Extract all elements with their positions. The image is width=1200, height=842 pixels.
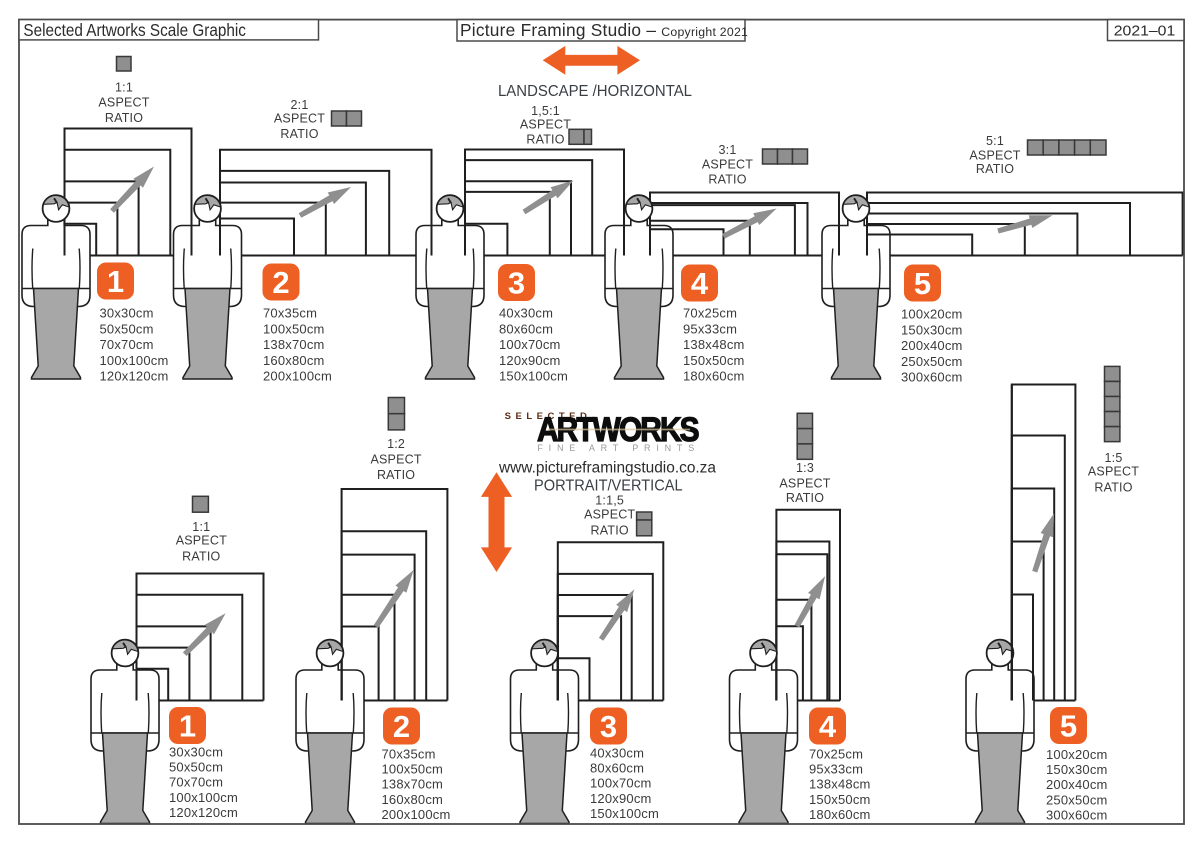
svg-text:5:1: 5:1 [986,134,1004,148]
svg-text:PORTRAIT/VERTICAL: PORTRAIT/VERTICAL [534,478,683,495]
svg-text:50x50cm: 50x50cm [100,321,154,336]
svg-text:ASPECT: ASPECT [176,533,227,547]
svg-text:LANDSCAPE /HORIZONTAL: LANDSCAPE /HORIZONTAL [498,83,692,100]
svg-text:250x50cm: 250x50cm [901,354,963,369]
svg-text:120x120cm: 120x120cm [169,805,238,820]
svg-text:30x30cm: 30x30cm [169,745,223,760]
svg-text:300x60cm: 300x60cm [901,370,963,385]
svg-text:70x35cm: 70x35cm [382,747,436,762]
svg-text:70x25cm: 70x25cm [809,747,863,762]
svg-text:138x48cm: 138x48cm [809,777,871,792]
svg-text:2:1: 2:1 [291,98,309,112]
svg-text:100x20cm: 100x20cm [1046,747,1108,762]
svg-text:FINE ART PRINTS: FINE ART PRINTS [537,443,700,453]
svg-text:1: 1 [179,709,196,744]
svg-text:ASPECT: ASPECT [520,118,571,132]
svg-text:5: 5 [1060,709,1077,744]
svg-text:70x25cm: 70x25cm [683,306,737,321]
svg-text:RATIO: RATIO [591,524,629,538]
svg-text:RATIO: RATIO [708,173,746,187]
svg-text:150x50cm: 150x50cm [809,792,871,807]
svg-text:RATIO: RATIO [976,162,1014,176]
svg-text:138x70cm: 138x70cm [382,777,444,792]
svg-text:150x100cm: 150x100cm [590,806,659,821]
svg-text:ASPECT: ASPECT [274,112,325,126]
svg-text:70x70cm: 70x70cm [169,775,223,790]
svg-text:1:1: 1:1 [192,520,210,534]
svg-text:Selected Artworks Scale Graphi: Selected Artworks Scale Graphic [23,20,246,40]
svg-text:100x50cm: 100x50cm [382,762,444,777]
svg-text:RATIO: RATIO [526,133,564,147]
svg-text:40x30cm: 40x30cm [499,306,553,321]
svg-text:4: 4 [819,709,837,744]
svg-text:ASPECT: ASPECT [1088,465,1139,479]
svg-text:1:5: 1:5 [1105,451,1123,465]
svg-text:RATIO: RATIO [182,549,220,563]
svg-text:www.pictureframingstudio.co.za: www.pictureframingstudio.co.za [498,460,716,477]
svg-text:1: 1 [107,264,124,299]
svg-text:3: 3 [508,266,525,301]
svg-text:ASPECT: ASPECT [702,157,753,171]
svg-text:95x33cm: 95x33cm [683,321,737,336]
svg-text:ASPECT: ASPECT [969,149,1020,163]
svg-text:100x100cm: 100x100cm [100,353,169,368]
svg-text:RATIO: RATIO [1094,481,1132,495]
svg-text:3:1: 3:1 [719,143,737,157]
svg-text:3: 3 [600,709,617,744]
svg-text:1:1: 1:1 [115,81,133,95]
svg-text:120x90cm: 120x90cm [499,353,561,368]
svg-text:100x70cm: 100x70cm [590,776,652,791]
svg-text:100x70cm: 100x70cm [499,337,561,352]
svg-text:80x60cm: 80x60cm [499,321,553,336]
svg-text:150x30cm: 150x30cm [1046,762,1108,777]
svg-text:138x70cm: 138x70cm [263,337,325,352]
svg-text:1:2: 1:2 [387,437,405,451]
svg-text:150x100cm: 150x100cm [499,369,568,384]
svg-text:1:1,5: 1:1,5 [595,493,624,507]
svg-text:ASPECT: ASPECT [98,95,149,109]
svg-text:180x60cm: 180x60cm [809,807,871,822]
svg-text:30x30cm: 30x30cm [100,306,154,321]
svg-text:160x80cm: 160x80cm [263,353,325,368]
svg-text:1:3: 1:3 [796,461,814,475]
svg-text:ASPECT: ASPECT [584,508,635,522]
svg-text:50x50cm: 50x50cm [169,760,223,775]
svg-text:180x60cm: 180x60cm [683,369,745,384]
svg-text:70x70cm: 70x70cm [100,337,154,352]
svg-text:2: 2 [272,265,289,300]
svg-text:150x50cm: 150x50cm [683,353,745,368]
svg-text:100x50cm: 100x50cm [263,321,325,336]
svg-text:5: 5 [914,266,931,301]
svg-text:200x100cm: 200x100cm [382,807,451,822]
svg-text:1,5:1: 1,5:1 [531,104,560,118]
svg-text:200x40cm: 200x40cm [901,338,963,353]
svg-text:ASPECT: ASPECT [370,453,421,467]
svg-text:80x60cm: 80x60cm [590,761,644,776]
svg-text:RATIO: RATIO [786,491,824,505]
svg-text:2: 2 [393,709,410,744]
svg-text:70x35cm: 70x35cm [263,306,317,321]
svg-text:RATIO: RATIO [105,111,143,125]
svg-text:4: 4 [691,266,709,301]
svg-text:RATIO: RATIO [377,468,415,482]
svg-text:138x48cm: 138x48cm [683,337,745,352]
svg-text:95x33cm: 95x33cm [809,762,863,777]
svg-text:120x90cm: 120x90cm [590,791,652,806]
svg-text:200x100cm: 200x100cm [263,369,332,384]
svg-text:300x60cm: 300x60cm [1046,807,1108,822]
svg-text:200x40cm: 200x40cm [1046,777,1108,792]
svg-text:250x50cm: 250x50cm [1046,792,1108,807]
svg-text:2021–01: 2021–01 [1114,24,1176,40]
svg-text:100x20cm: 100x20cm [901,307,963,322]
svg-text:120x120cm: 120x120cm [100,369,169,384]
svg-text:RATIO: RATIO [280,127,318,141]
svg-text:160x80cm: 160x80cm [382,792,444,807]
svg-text:100x100cm: 100x100cm [169,790,238,805]
svg-text:ASPECT: ASPECT [779,477,830,491]
svg-text:40x30cm: 40x30cm [590,746,644,761]
svg-text:150x30cm: 150x30cm [901,322,963,337]
